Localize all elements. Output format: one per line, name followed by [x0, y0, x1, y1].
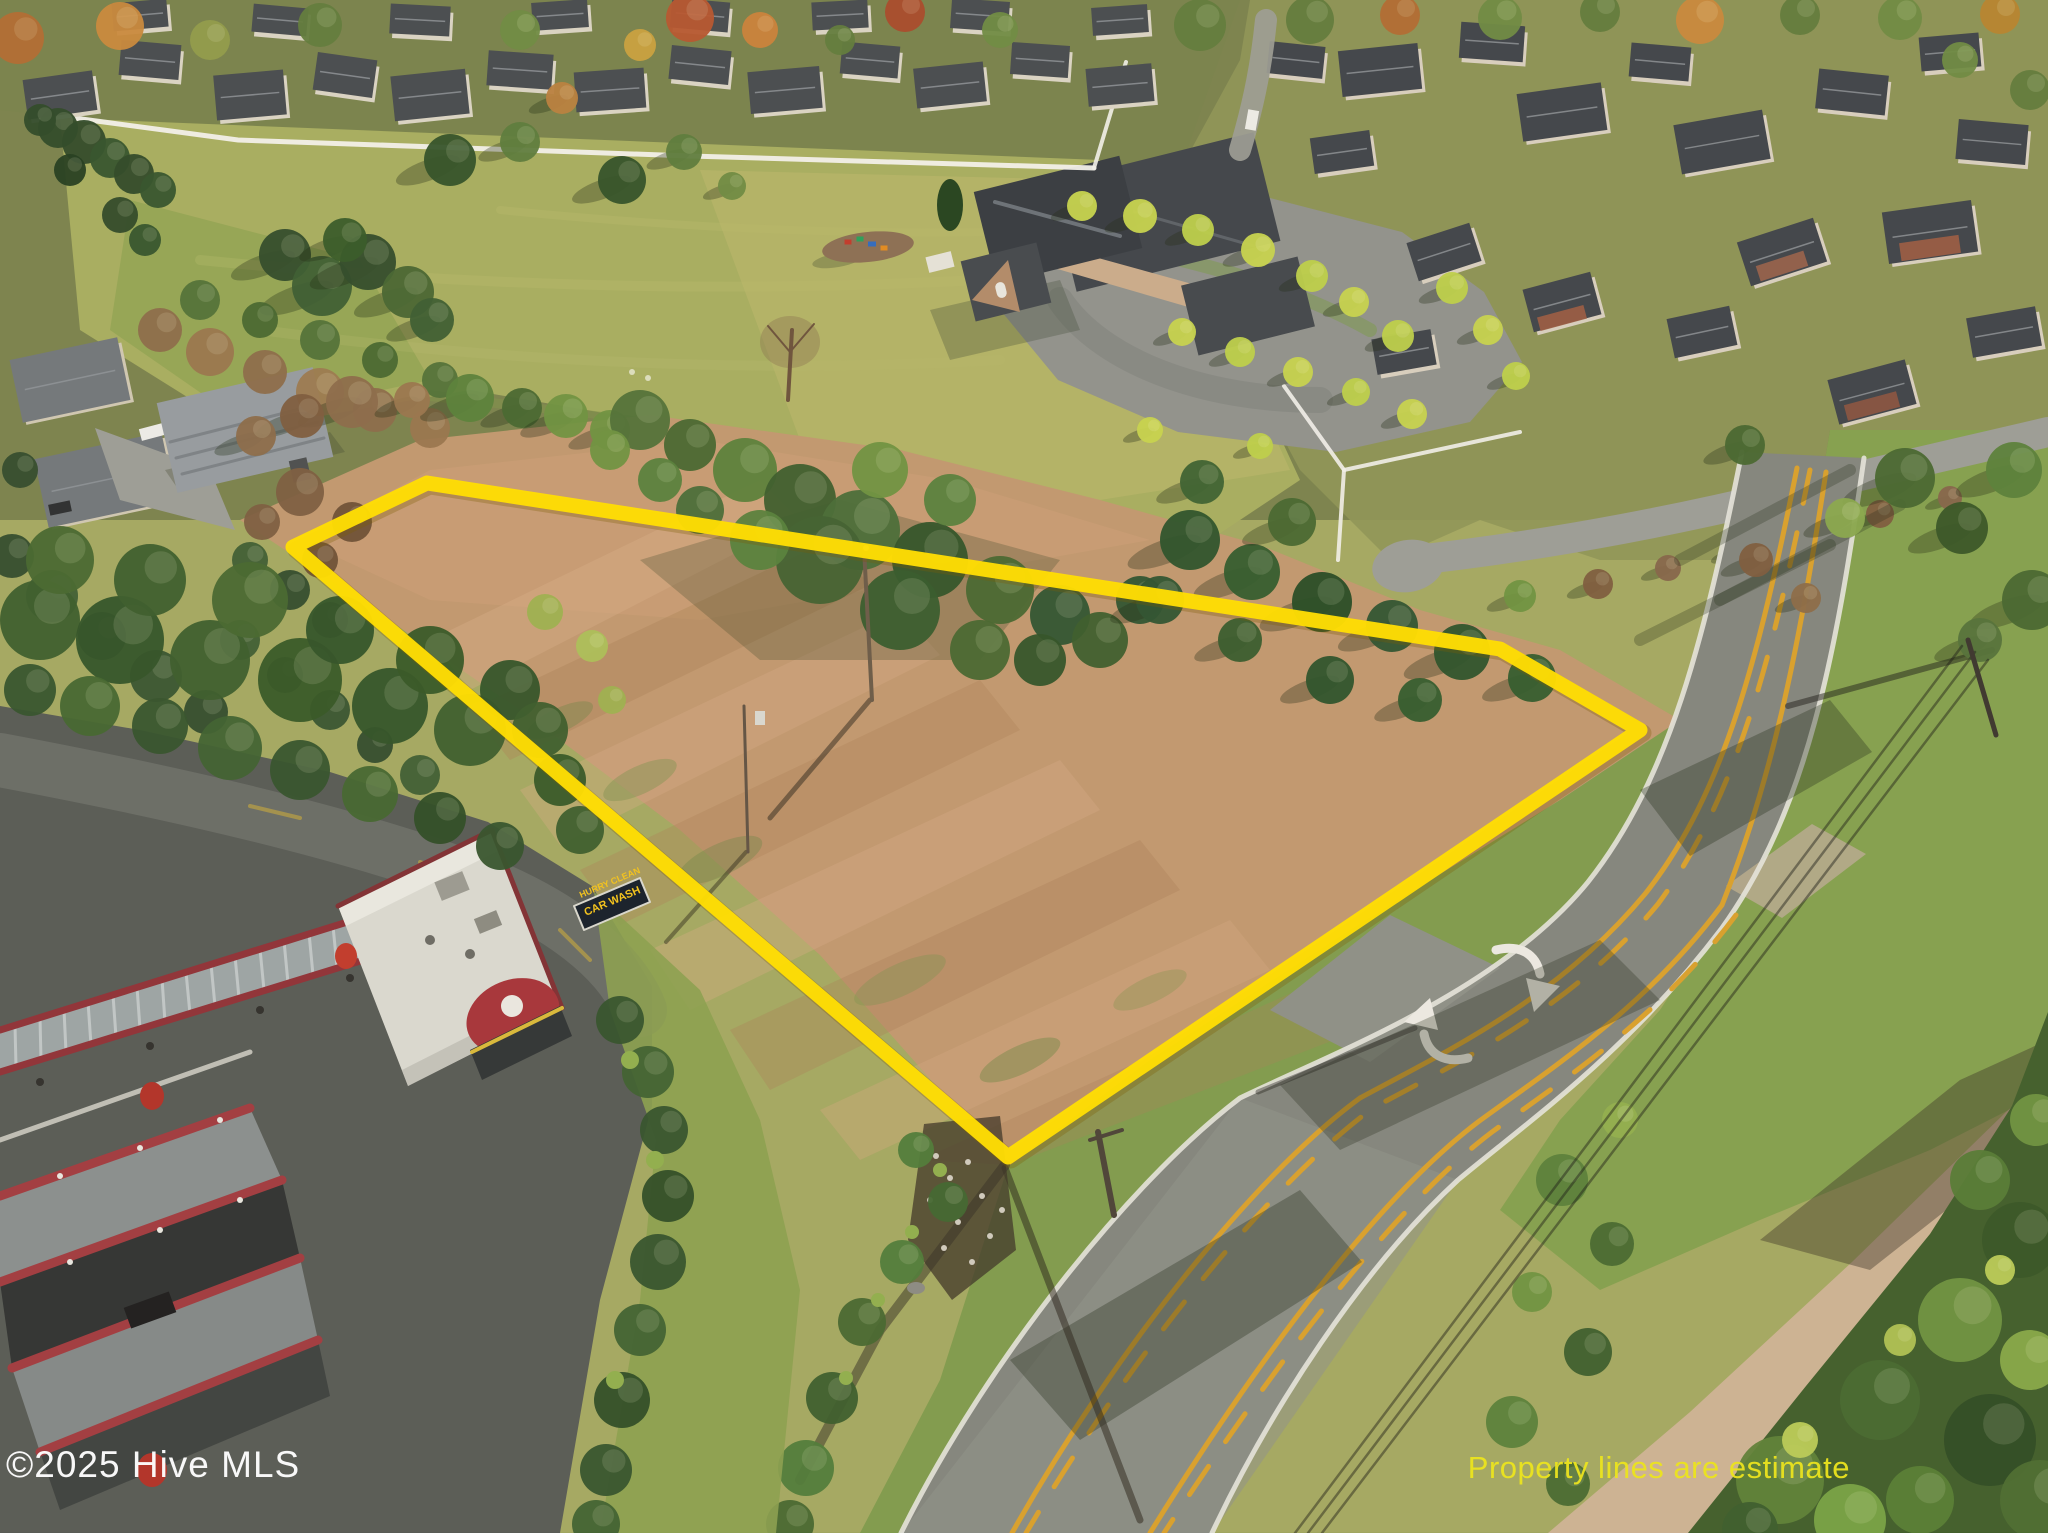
aerial-photo: HURRY CLEANCAR WASH ©2025 Hive MLS Prope…	[0, 0, 2048, 1533]
aerial-photo-canvas: HURRY CLEANCAR WASH	[0, 0, 2048, 1533]
photo-tint	[0, 0, 2048, 1533]
